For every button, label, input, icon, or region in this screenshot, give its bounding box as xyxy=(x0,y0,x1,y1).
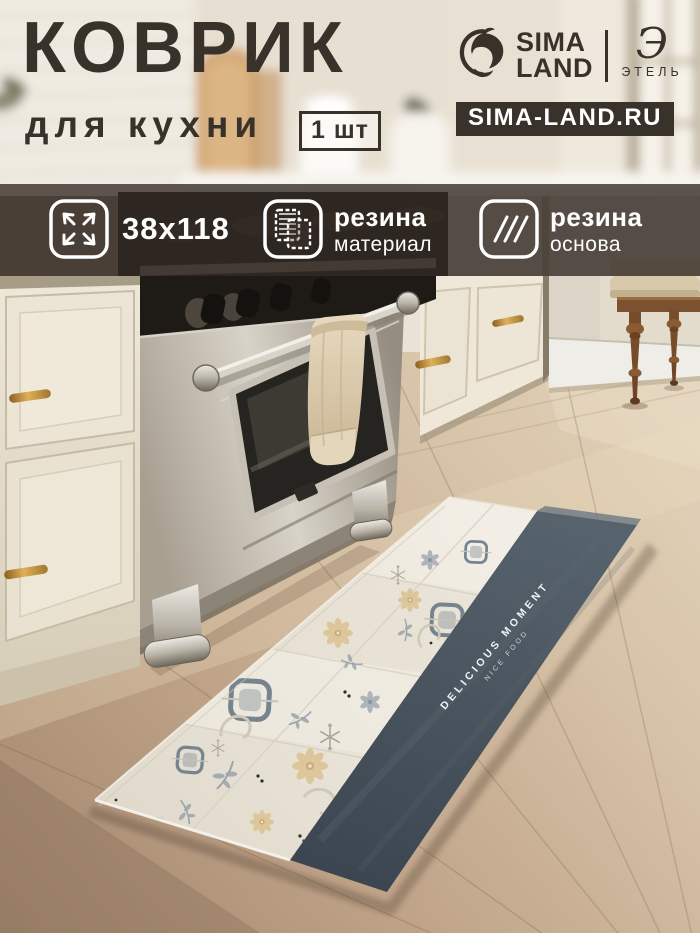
website-bar: SIMA-LAND.RU xyxy=(456,102,674,136)
feature-banner: 38х118 резина материал xyxy=(0,184,700,276)
expand-arrows-icon xyxy=(48,198,110,260)
left-cabinets xyxy=(0,276,140,706)
brand-divider xyxy=(605,30,608,82)
feature-base-title: резина xyxy=(550,204,642,230)
feature-material-subtitle: материал xyxy=(334,234,432,255)
etel-script-monogram: Э xyxy=(619,24,685,64)
page-subtitle: для кухни xyxy=(25,106,263,143)
brand-logos: SIMA LAND Э ЭТЕЛЬ xyxy=(456,24,685,84)
sima-land-dolphin-icon xyxy=(456,24,510,84)
fabric-layers-icon xyxy=(262,198,324,260)
brand-name: SIMA LAND xyxy=(516,24,593,81)
sub-brand-name: ЭТЕЛЬ xyxy=(619,65,685,79)
quantity-badge: 1 шт xyxy=(299,111,381,151)
page-title: КОВРИК xyxy=(22,12,348,84)
brand-name-top: SIMA xyxy=(516,29,593,55)
feature-material: резина материал xyxy=(262,198,432,260)
diagonal-stripes-icon xyxy=(478,198,540,260)
feature-size-label: 38х118 xyxy=(122,211,230,247)
feature-base: резина основа xyxy=(478,198,642,260)
product-card: 38х118 резина материал xyxy=(0,0,700,933)
feature-size: 38х118 xyxy=(48,198,230,260)
sub-brand: Э ЭТЕЛЬ xyxy=(619,24,685,79)
feature-material-title: резина xyxy=(334,204,432,230)
brand-name-bottom: LAND xyxy=(516,55,593,81)
feature-base-subtitle: основа xyxy=(550,234,642,255)
